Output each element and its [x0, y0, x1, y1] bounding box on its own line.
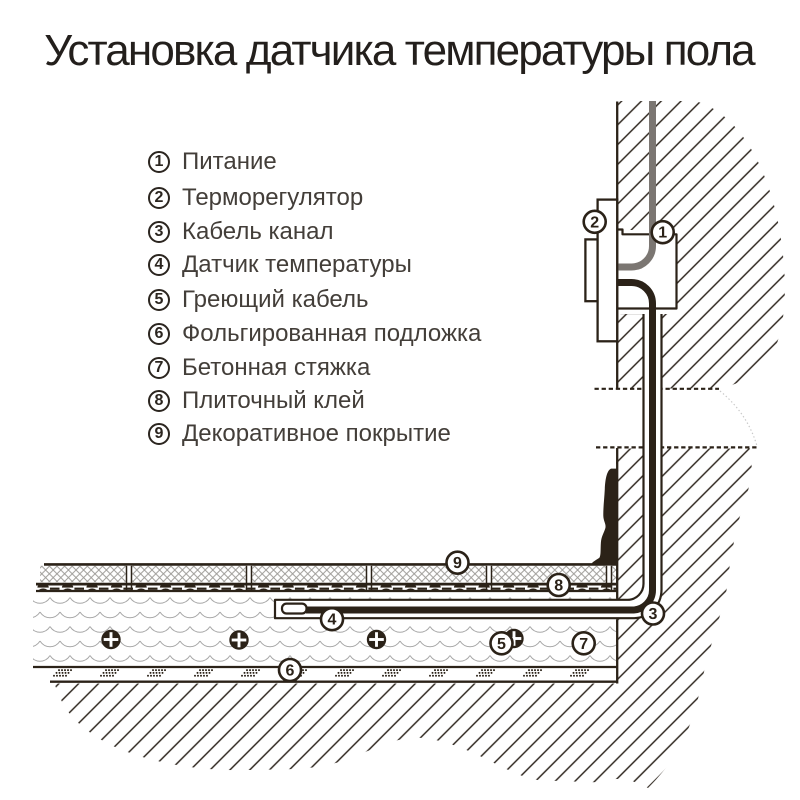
svg-text:2: 2 — [590, 214, 599, 231]
svg-text:3: 3 — [649, 606, 658, 623]
svg-text:1: 1 — [658, 225, 667, 242]
svg-text:5: 5 — [497, 636, 506, 653]
svg-text:9: 9 — [453, 555, 462, 572]
svg-text:8: 8 — [554, 578, 563, 595]
svg-text:4: 4 — [328, 612, 337, 629]
svg-text:6: 6 — [286, 663, 295, 680]
svg-text:7: 7 — [579, 636, 588, 653]
